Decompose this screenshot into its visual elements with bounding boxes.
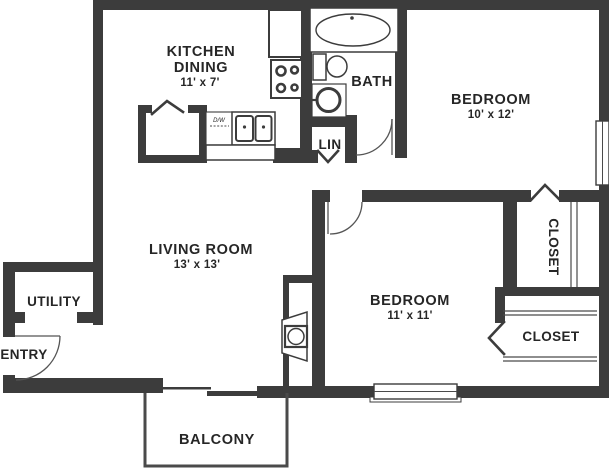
linen-door-chevron bbox=[318, 151, 338, 162]
dining-label: DINING bbox=[174, 60, 228, 76]
window-right-bedroom bbox=[596, 121, 609, 185]
refrigerator bbox=[269, 10, 302, 57]
kitchen-dims: 11' x 7' bbox=[180, 77, 219, 89]
fireplace bbox=[282, 312, 307, 361]
dishwasher-label: D/W bbox=[213, 118, 226, 124]
kitchen-label: KITCHEN bbox=[167, 44, 236, 60]
pantry-closet bbox=[138, 101, 207, 163]
bedroom-bottom-dims: 11' x 11' bbox=[387, 310, 432, 322]
living-room-label: LIVING ROOM bbox=[149, 242, 253, 258]
pantry-door-chevron bbox=[152, 101, 183, 114]
bedroom-top-dims: 10' x 12' bbox=[468, 109, 515, 121]
toilet bbox=[313, 54, 347, 80]
linen-label: LIN bbox=[319, 137, 342, 152]
bedroom2-door bbox=[328, 202, 362, 234]
bath-door bbox=[356, 119, 392, 155]
stove bbox=[271, 60, 302, 98]
bath-sink bbox=[312, 84, 346, 117]
kitchen-counter bbox=[206, 145, 275, 160]
window-bottom-bedroom bbox=[370, 384, 461, 402]
floor-plan-canvas: KITCHEN DINING 11' x 7' BATH BEDROOM 10'… bbox=[0, 0, 609, 470]
bedroom-bottom-label: BEDROOM bbox=[370, 293, 450, 309]
bathtub bbox=[310, 8, 398, 52]
dishwasher bbox=[206, 112, 233, 145]
kitchen-sink bbox=[232, 112, 275, 145]
living-room-dims: 13' x 13' bbox=[174, 259, 221, 271]
sliding-door bbox=[163, 387, 257, 396]
balcony-label: BALCONY bbox=[179, 432, 255, 448]
closet-top-door-chevron bbox=[531, 185, 559, 200]
closet-bottom-label: CLOSET bbox=[522, 329, 580, 344]
bath-label: BATH bbox=[351, 74, 393, 90]
floor-plan: KITCHEN DINING 11' x 7' BATH BEDROOM 10'… bbox=[0, 0, 609, 470]
utility-label: UTILITY bbox=[27, 294, 81, 309]
bedroom-top-label: BEDROOM bbox=[451, 92, 531, 108]
closet-bottom-door-chevron bbox=[489, 322, 504, 354]
closet-top-label: CLOSET bbox=[546, 218, 561, 276]
entry-label: ENTRY bbox=[0, 347, 47, 362]
balcony-rail bbox=[145, 393, 287, 466]
